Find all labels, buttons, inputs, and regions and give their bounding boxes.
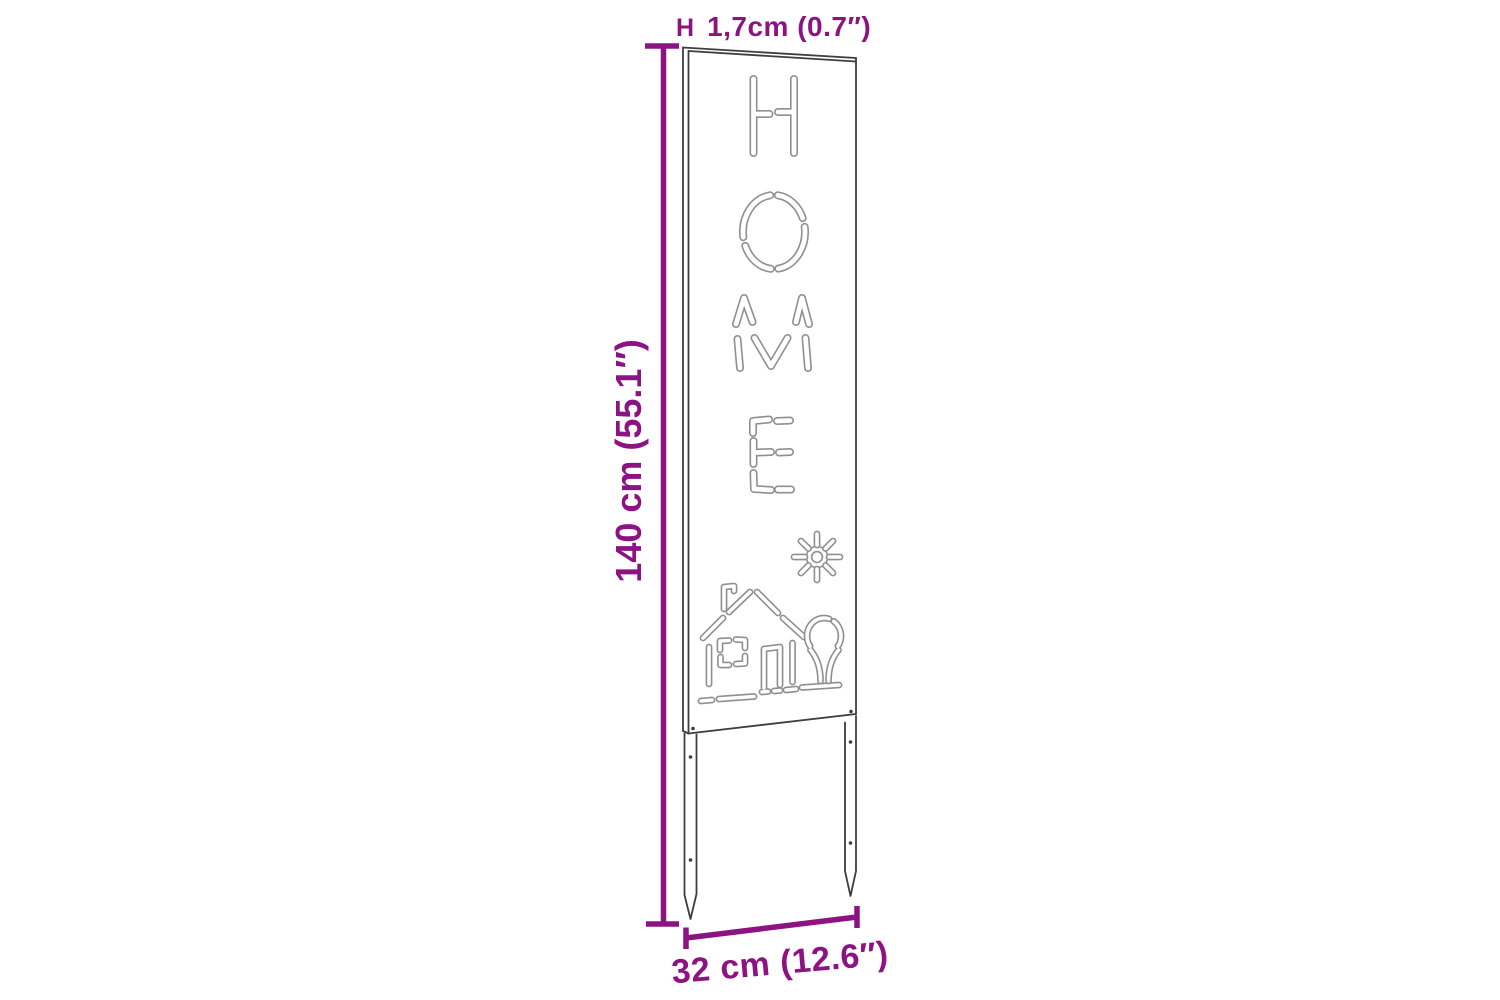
width-dimension-extent [686, 917, 857, 938]
thickness-marker: H [676, 13, 694, 43]
tree-icon [807, 618, 841, 681]
ground-stake-right [845, 716, 856, 896]
thickness-value: 1,7cm (0.7″) [707, 10, 871, 44]
thickness-dimension-label: H 1,7cm (0.7″) [676, 10, 871, 44]
cutout-letter-e [753, 420, 791, 491]
panel-bottom-edge [683, 714, 856, 734]
cutout-letter-o [743, 195, 805, 268]
stake-screw-hole [689, 858, 693, 862]
stake-screw-hole [689, 755, 693, 759]
stake-left-outline [685, 734, 697, 920]
cutout-letter-h [754, 79, 795, 153]
ground-stake-left [685, 734, 697, 920]
cutout-letter-o-core [743, 195, 805, 268]
product-dimension-diagram: H 1,7cm (0.7″) 140 cm (55.1″) 32 cm (12.… [0, 0, 1500, 1000]
house-icon [701, 586, 839, 701]
height-dimension-label: 140 cm (55.1″) [607, 311, 651, 611]
sun-icon [794, 534, 840, 580]
diagram-line-art [0, 0, 1500, 1000]
panel-screw-hole [691, 727, 695, 731]
panel-screw-hole [849, 710, 853, 714]
cutout-letter-m [736, 298, 809, 368]
stake-screw-hole [849, 841, 853, 845]
home-cutout-letters [736, 79, 809, 490]
stake-screw-hole [849, 740, 853, 744]
sun-rays-core [794, 534, 840, 580]
